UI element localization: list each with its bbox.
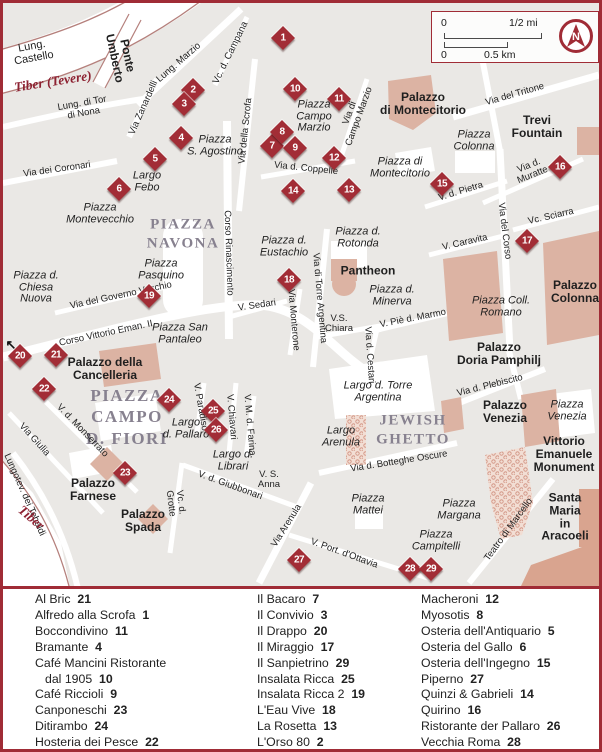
legend-entry-name: Ditirambo bbox=[35, 719, 88, 733]
legend-entry: L'Orso 80 2 bbox=[257, 735, 365, 751]
legend-entry: Macheroni 12 bbox=[421, 592, 560, 608]
map-label: Piazza Coll. Romano bbox=[472, 295, 530, 318]
marker-number: 13 bbox=[341, 182, 358, 199]
legend-entry-name: Boccondivino bbox=[35, 624, 108, 638]
restaurant-marker-20: 20 bbox=[8, 344, 32, 368]
scale-mi-bar bbox=[444, 33, 542, 39]
map-label: Piazza d. Eustachio bbox=[260, 235, 308, 258]
map-label: Palazzo Spada bbox=[121, 508, 165, 534]
legend-entry-number: 19 bbox=[351, 687, 365, 701]
legend-entry-number: 26 bbox=[547, 719, 561, 733]
legend-entry-number: 28 bbox=[507, 735, 521, 749]
map-label: Pantheon bbox=[341, 265, 396, 278]
legend-entry: Quinzi & Gabrieli 14 bbox=[421, 687, 560, 703]
marker-number: 27 bbox=[291, 552, 308, 569]
scale-km-zero: 0 bbox=[441, 49, 447, 61]
legend-entry-number: 9 bbox=[110, 687, 117, 701]
map-label: Piazza Campo Marzio bbox=[296, 100, 331, 135]
map-label: Vc. d. Grotte bbox=[163, 489, 187, 518]
map-label: Piazza Colonna bbox=[454, 129, 495, 152]
marker-number: 25 bbox=[205, 403, 222, 420]
legend-entry-name: Osteria dell'Antiquario bbox=[421, 624, 541, 638]
restaurant-marker-26: 26 bbox=[204, 418, 228, 442]
legend-entry-number: 18 bbox=[322, 703, 336, 717]
legend-entry-name: Macheroni bbox=[421, 592, 478, 606]
legend-entry-name: Il Convivio bbox=[257, 608, 314, 622]
map-label: V. S. Anna bbox=[258, 470, 280, 491]
legend-entry: Il Bacaro 7 bbox=[257, 592, 365, 608]
map-label: Palazzo Venezia bbox=[483, 399, 527, 425]
compass-rose-icon: N bbox=[559, 19, 593, 53]
legend-entry-name: Osteria dell'Ingegno bbox=[421, 656, 530, 670]
map-label: Trevi Fountain bbox=[512, 114, 563, 140]
restaurant-marker-21: 21 bbox=[44, 343, 68, 367]
restaurant-marker-27: 27 bbox=[287, 548, 311, 572]
restaurant-marker-11: 11 bbox=[327, 87, 351, 111]
legend-column-3: Macheroni 12Myosotis 8Osteria dell'Antiq… bbox=[421, 592, 560, 751]
legend-entry-number: 13 bbox=[323, 719, 337, 733]
legend-entry-name: Insalata Ricca bbox=[257, 672, 334, 686]
legend-entry-number: 11 bbox=[115, 624, 128, 638]
marker-number: 4 bbox=[173, 130, 190, 147]
restaurant-marker-24: 24 bbox=[157, 388, 181, 412]
map-label: Palazzo Colonna bbox=[551, 279, 599, 305]
legend-entry-number: 17 bbox=[321, 640, 335, 654]
compass-n-letter: N bbox=[572, 31, 580, 43]
restaurant-marker-23: 23 bbox=[113, 461, 137, 485]
legend-entry-name: Il Drappo bbox=[257, 624, 307, 638]
legend-entry: Myosotis 8 bbox=[421, 608, 560, 624]
marker-number: 8 bbox=[274, 124, 291, 141]
restaurant-marker-29: 29 bbox=[419, 557, 443, 581]
legend-entry-name: dal 1905 bbox=[45, 672, 92, 686]
legend-entry-name: Bramante bbox=[35, 640, 88, 654]
legend-entry-name: Il Bacaro bbox=[257, 592, 306, 606]
marker-number: 10 bbox=[287, 81, 304, 98]
legend-entry: L'Eau Vive 18 bbox=[257, 703, 365, 719]
legend-entry-number: 1 bbox=[142, 608, 149, 622]
marker-number: 29 bbox=[423, 561, 440, 578]
legend-entry: Café Mancini Ristorante bbox=[35, 656, 166, 672]
legend-entry-name: Café Mancini Ristorante bbox=[35, 656, 166, 670]
legend-entry-name: Myosotis bbox=[421, 608, 470, 622]
marker-number: 16 bbox=[552, 159, 569, 176]
restaurant-marker-13: 13 bbox=[337, 178, 361, 202]
legend-entry: Osteria dell'Ingegno 15 bbox=[421, 656, 560, 672]
legend-entry: La Rosetta 13 bbox=[257, 719, 365, 735]
legend-entry-name: Alfredo alla Scrofa bbox=[35, 608, 135, 622]
marker-number: 5 bbox=[147, 151, 164, 168]
legend-entry: Il Convivio 3 bbox=[257, 608, 365, 624]
legend-entry: Il Drappo 20 bbox=[257, 624, 365, 640]
map-label: Corso Rinascimento bbox=[221, 210, 234, 296]
map-label: Palazzo di Montecitorio bbox=[380, 91, 466, 117]
restaurant-marker-4: 4 bbox=[169, 126, 193, 150]
map-label: Palazzo della Cancelleria bbox=[68, 356, 143, 382]
map-label: Santa Maria in Aracoeli bbox=[541, 491, 588, 542]
restaurant-marker-5: 5 bbox=[143, 147, 167, 171]
legend-entry: Vecchia Roma 28 bbox=[421, 735, 560, 751]
legend-entry-name: Quirino bbox=[421, 703, 461, 717]
legend-entry: dal 1905 10 bbox=[35, 672, 166, 688]
marker-number: 28 bbox=[402, 561, 419, 578]
map-label: Piazza Campitelli bbox=[412, 529, 460, 552]
marker-number: 26 bbox=[208, 422, 225, 439]
map-label: Piazza S. Agostino bbox=[187, 134, 243, 157]
restaurant-marker-17: 17 bbox=[515, 229, 539, 253]
map-label: Vittorio Emanuele Monument bbox=[534, 435, 595, 473]
legend-entry: Il Miraggio 17 bbox=[257, 640, 365, 656]
legend-entry-number: 25 bbox=[341, 672, 355, 686]
marker-number: 6 bbox=[111, 181, 128, 198]
restaurant-marker-15: 15 bbox=[430, 172, 454, 196]
legend-entry-number: 12 bbox=[485, 592, 499, 606]
map-label: Piazza San Pantaleo bbox=[152, 322, 208, 345]
legend-entry-name: Il Sanpietrino bbox=[257, 656, 329, 670]
marker-number: 15 bbox=[434, 176, 451, 193]
map-label: Piazza d. Chiesa Nuova bbox=[13, 271, 58, 306]
legend-entry-number: 24 bbox=[94, 719, 108, 733]
legend-entry-name: Al Bric bbox=[35, 592, 71, 606]
legend-entry: Ditirambo 24 bbox=[35, 719, 166, 735]
legend-entry-number: 22 bbox=[145, 735, 159, 749]
legend-entry: Osteria dell'Antiquario 5 bbox=[421, 624, 560, 640]
legend-entry-name: Piperno bbox=[421, 672, 463, 686]
restaurant-marker-3: 3 bbox=[172, 92, 196, 116]
restaurant-marker-10: 10 bbox=[283, 77, 307, 101]
marker-number: 17 bbox=[519, 233, 536, 250]
legend-entry: Café Riccioli 9 bbox=[35, 687, 166, 703]
legend-entry-name: Hosteria dei Pesce bbox=[35, 735, 138, 749]
legend-entry-number: 14 bbox=[520, 687, 534, 701]
map-label: Palazzo Doria Pamphilj bbox=[457, 341, 541, 367]
restaurant-marker-18: 18 bbox=[277, 268, 301, 292]
legend-entry-number: 20 bbox=[314, 624, 328, 638]
legend-entry-name: L'Eau Vive bbox=[257, 703, 315, 717]
legend-entry-number: 16 bbox=[468, 703, 482, 717]
legend-entry-name: La Rosetta bbox=[257, 719, 316, 733]
legend-entry-name: Il Miraggio bbox=[257, 640, 314, 654]
map-label: Piazza Mattei bbox=[351, 493, 384, 516]
legend-entry-number: 23 bbox=[114, 703, 128, 717]
legend-entry: Osteria del Gallo 6 bbox=[421, 640, 560, 656]
scale-km-bar bbox=[444, 42, 508, 48]
scale-bar: 0 1/2 mi 0 0.5 km N bbox=[431, 11, 599, 63]
legend-entry-name: Osteria del Gallo bbox=[421, 640, 513, 654]
marker-number: 18 bbox=[281, 272, 298, 289]
legend-entry: Piperno 27 bbox=[421, 672, 560, 688]
restaurant-marker-22: 22 bbox=[32, 377, 56, 401]
map-label: Piazza Venezia bbox=[547, 399, 586, 422]
map-label: Largo Febo bbox=[133, 170, 161, 193]
legend-entry-name: Vecchia Roma bbox=[421, 735, 500, 749]
legend-entry-name: Insalata Ricca 2 bbox=[257, 687, 345, 701]
map-label: Largo d. Pallaro bbox=[163, 417, 209, 440]
legend-entry-number: 8 bbox=[476, 608, 483, 622]
map-label: JEWISH GHETTO bbox=[376, 411, 450, 449]
restaurant-marker-6: 6 bbox=[107, 177, 131, 201]
restaurant-marker-14: 14 bbox=[281, 179, 305, 203]
marker-number: 24 bbox=[161, 392, 178, 409]
legend-entry-number: 10 bbox=[99, 672, 113, 686]
legend-entry: Canponeschi 23 bbox=[35, 703, 166, 719]
legend-entry-number: 27 bbox=[470, 672, 484, 686]
restaurant-marker-12: 12 bbox=[322, 146, 346, 170]
legend-entry-number: 2 bbox=[317, 735, 324, 749]
legend-entry-number: 15 bbox=[537, 656, 551, 670]
map-label: Piazza Montevecchio bbox=[66, 202, 134, 225]
legend-entry: Alfredo alla Scrofa 1 bbox=[35, 608, 166, 624]
restaurant-marker-1: 1 bbox=[271, 26, 295, 50]
legend-entry: Hosteria dei Pesce 22 bbox=[35, 735, 166, 751]
map-label: Piazza d. Minerva bbox=[369, 284, 414, 307]
legend-entry-name: Quinzi & Gabrieli bbox=[421, 687, 513, 701]
restaurant-marker-9: 9 bbox=[283, 136, 307, 160]
legend-entry-name: L'Orso 80 bbox=[257, 735, 310, 749]
legend-entry-name: Canponeschi bbox=[35, 703, 107, 717]
marker-number: 1 bbox=[275, 30, 292, 47]
legend-entry: Ristorante der Pallaro 26 bbox=[421, 719, 560, 735]
map-label: PIAZZA NAVONA bbox=[147, 215, 220, 253]
marker-number: 21 bbox=[48, 347, 65, 364]
marker-number: 23 bbox=[117, 465, 134, 482]
legend-entry: Bramante 4 bbox=[35, 640, 166, 656]
legend-entry: Insalata Ricca 2 19 bbox=[257, 687, 365, 703]
marker-number: 12 bbox=[326, 150, 343, 167]
marker-number: 19 bbox=[141, 288, 158, 305]
legend-entry-number: 6 bbox=[519, 640, 526, 654]
legend-column-2: Il Bacaro 7Il Convivio 3Il Drappo 20Il M… bbox=[257, 592, 365, 751]
map-label: Piazza di Montecitorio bbox=[370, 156, 430, 179]
scale-mi-zero: 0 bbox=[441, 17, 447, 29]
legend-entry-number: 29 bbox=[336, 656, 350, 670]
map-label: Piazza Pasquino bbox=[138, 258, 184, 281]
map-label: Largo Arenula bbox=[322, 425, 360, 448]
legend-entry-name: Ristorante der Pallaro bbox=[421, 719, 540, 733]
restaurant-marker-16: 16 bbox=[548, 155, 572, 179]
marker-number: 20 bbox=[12, 348, 29, 365]
scale-mi-label: 1/2 mi bbox=[509, 17, 538, 29]
map-label: Piazza d. Rotonda bbox=[335, 226, 380, 249]
legend-entry: Insalata Ricca 25 bbox=[257, 672, 365, 688]
scale-km-label: 0.5 km bbox=[484, 49, 516, 61]
marker-number: 11 bbox=[331, 91, 348, 108]
restaurant-marker-19: 19 bbox=[137, 284, 161, 308]
legend-entry: Il Sanpietrino 29 bbox=[257, 656, 365, 672]
legend-column-1: Al Bric 21Alfredo alla Scrofa 1Boccondiv… bbox=[35, 592, 166, 751]
legend-entry-number: 5 bbox=[548, 624, 555, 638]
marker-number: 14 bbox=[285, 183, 302, 200]
map-label: Piazza Margana bbox=[437, 498, 480, 521]
legend-entry-number: 3 bbox=[321, 608, 328, 622]
marker-number: 22 bbox=[36, 381, 53, 398]
legend-entry-number: 21 bbox=[77, 592, 91, 606]
legend-entry-number: 7 bbox=[312, 592, 319, 606]
marker-number: 9 bbox=[287, 140, 304, 157]
restaurant-legend: Al Bric 21Alfredo alla Scrofa 1Boccondiv… bbox=[3, 586, 599, 749]
marker-number: 3 bbox=[176, 96, 193, 113]
legend-entry: Al Bric 21 bbox=[35, 592, 166, 608]
map-label: Largo d. Torre Argentina bbox=[344, 380, 413, 403]
map-page: Lung. CastelloTiber (Tevere)Ponte Umbert… bbox=[0, 0, 602, 752]
map-label: Palazzo Farnese bbox=[70, 477, 116, 503]
legend-entry: Quirino 16 bbox=[421, 703, 560, 719]
legend-entry-number: 4 bbox=[95, 640, 102, 654]
legend-entry: Boccondivino 11 bbox=[35, 624, 166, 640]
map-canvas: Lung. CastelloTiber (Tevere)Ponte Umbert… bbox=[3, 3, 599, 586]
legend-entry-name: Café Riccioli bbox=[35, 687, 103, 701]
map-label: Largo d. Librari bbox=[213, 449, 253, 472]
map-label: V.S. Chiara bbox=[325, 314, 353, 335]
